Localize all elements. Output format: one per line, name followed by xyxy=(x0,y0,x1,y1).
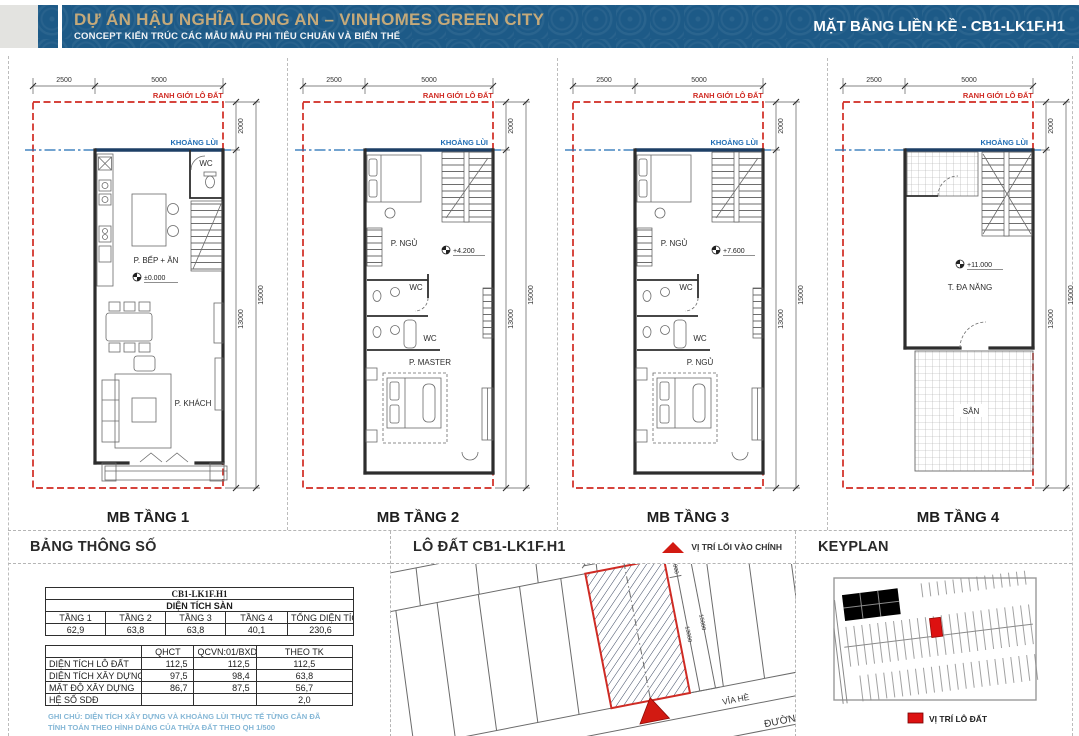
dim-body: 13000 xyxy=(1048,309,1055,329)
dim-body: 13000 xyxy=(238,309,245,329)
area-section-header: DIỆN TÍCH SÀN xyxy=(46,600,354,612)
area-value: 40,1 xyxy=(226,624,288,636)
floor-plan-tang-1: 2500 5000 RANH GIỚI LÔ ĐẤT KHOẢNG LÙI 20… xyxy=(10,58,280,528)
dim-front-yard: 2500 xyxy=(326,77,342,84)
plan-title: MB TẦNG 4 xyxy=(917,509,1000,526)
level-symbol xyxy=(712,246,720,254)
area-value: 62,9 xyxy=(46,624,106,636)
project-title: DỰ ÁN HẬU NGHĨA LONG AN – VINHOMES GREEN… xyxy=(74,11,544,30)
logo-block xyxy=(38,5,58,48)
entrance-legend: VỊ TRÍ LỐI VÀO CHÍNH xyxy=(662,542,796,553)
sheet-title: MẶT BẰNG LIỀN KỀ - CB1-LK1F.H1 xyxy=(813,18,1079,35)
dim-width: 5000 xyxy=(421,77,437,84)
boundary-label: RANH GIỚI LÔ ĐẤT xyxy=(153,90,224,100)
value-qcvn: 87,5 xyxy=(194,682,256,694)
living-set xyxy=(102,303,223,448)
col-header: TỔNG DIỆN TÍCH SÀN xyxy=(288,612,354,624)
level-value: +11.000 xyxy=(967,262,992,269)
row-label: MẬT ĐỘ XÂY DỰNG xyxy=(46,682,142,694)
area-value: 230,6 xyxy=(288,624,354,636)
area-value: 63,8 xyxy=(106,624,166,636)
bed2 xyxy=(653,373,717,443)
boundary-label: RANH GIỚI LÔ ĐẤT xyxy=(423,90,494,100)
right-dimension-lines xyxy=(1035,99,1070,491)
subject-lot xyxy=(585,564,690,708)
stairs-rail xyxy=(1004,152,1009,236)
level-symbol xyxy=(442,246,450,254)
right-dimension-lines xyxy=(765,99,800,491)
room-label-kitchen: P. BẾP + ĂN xyxy=(134,255,179,265)
wc-walls xyxy=(190,150,223,198)
drawing-sheet: DỰ ÁN HẬU NGHĨA LONG AN – VINHOMES GREEN… xyxy=(0,0,1079,736)
dim-front-yard: 2500 xyxy=(596,77,612,84)
col-header: TẦNG 3 xyxy=(166,612,226,624)
project-subtitle: CONCEPT KIẾN TRÚC CÁC MẪU MẪU PHI TIÊU C… xyxy=(74,32,544,42)
kitchen-island xyxy=(132,194,179,246)
lot-panel: LÔ ĐẤT CB1-LK1F.H1 VỊ TRÍ LỐI VÀO CHÍNH xyxy=(390,531,796,736)
value-qhct: 112,5 xyxy=(142,658,194,670)
stair-landing xyxy=(907,152,978,196)
room-label-wc2: WC xyxy=(423,334,437,343)
plan-title: MB TẦNG 1 xyxy=(107,509,190,526)
spec-table: CB1-LK1F.H1 DIỆN TÍCH SÀN TẦNG 1 TẦNG 2 … xyxy=(45,587,353,706)
lot-panel-title-row: LÔ ĐẤT CB1-LK1F.H1 VỊ TRÍ LỐI VÀO CHÍNH xyxy=(391,531,796,564)
header-bar: DỰ ÁN HẬU NGHĨA LONG AN – VINHOMES GREEN… xyxy=(38,5,1079,48)
empty-cell xyxy=(46,646,142,658)
room-label-bedroom: P. NGỦ xyxy=(391,239,418,248)
col-header: TẦNG 1 xyxy=(46,612,106,624)
header-text: DỰ ÁN HẬU NGHĨA LONG AN – VINHOMES GREEN… xyxy=(62,11,544,42)
dim-setback: 2000 xyxy=(1048,118,1055,134)
closet xyxy=(367,228,382,266)
col-header: TẦNG 2 xyxy=(106,612,166,624)
spec-panel-title: BẢNG THÔNG SỐ xyxy=(8,539,157,555)
level-value: +4.200 xyxy=(453,248,475,255)
dim-total: 15000 xyxy=(798,285,805,305)
room-label-bedroom: P. NGỦ xyxy=(661,239,688,248)
col-header: THEO TK xyxy=(256,646,352,658)
bedroom-bed xyxy=(367,155,421,218)
room-label-bedroom2: P. NGỦ xyxy=(687,358,714,367)
dim-setback: 2000 xyxy=(778,118,785,134)
keyplan-legend-label: VỊ TRÍ LÔ ĐẤT xyxy=(929,713,988,724)
col-header: TẦNG 4 xyxy=(226,612,288,624)
floor-area-table: CB1-LK1F.H1 DIỆN TÍCH SÀN TẦNG 1 TẦNG 2 … xyxy=(45,587,354,636)
model-code: CB1-LK1F.H1 xyxy=(46,588,354,600)
area-value: 63,8 xyxy=(166,624,226,636)
boundary-label: RANH GIỚI LÔ ĐẤT xyxy=(693,90,764,100)
dim-total: 15000 xyxy=(258,285,265,305)
room-label-living: P. KHÁCH xyxy=(175,399,212,408)
floor-plan-tang-4: 2500 5000 RANH GIỚI LÔ ĐẤT KHOẢNG LÙI 20… xyxy=(820,58,1079,528)
spec-panel-title-row: BẢNG THÔNG SỐ xyxy=(8,531,390,564)
level-symbol xyxy=(956,260,964,268)
dim-body: 13000 xyxy=(508,309,515,329)
dim-front-yard: 2500 xyxy=(866,77,882,84)
value-tk: 112,5 xyxy=(256,658,352,670)
keyplan-map: VỊ TRÍ LÔ ĐẤT xyxy=(796,564,1079,736)
stairs-rail xyxy=(464,152,469,222)
plan-title: MB TẦNG 2 xyxy=(377,509,460,526)
boundary-label: RANH GIỚI LÔ ĐẤT xyxy=(963,90,1034,100)
room-label-terrace: SÂN xyxy=(963,407,980,416)
master-bed xyxy=(383,373,447,443)
dim-front-yard: 2500 xyxy=(56,77,72,84)
col-header: QCVN:01/BXD xyxy=(194,646,256,658)
site-plan: 2500 5000 2000 13000 15000 VỈA HÈ ĐƯỜNG xyxy=(391,564,796,736)
wc-fixtures xyxy=(643,288,698,349)
room-label-wc1: WC xyxy=(409,283,423,292)
dim-total: 15000 xyxy=(1068,285,1075,305)
sidewalk-label: VỈA HÈ xyxy=(721,691,750,707)
level-value: ±0.000 xyxy=(144,275,165,282)
road-label: ĐƯỜNG xyxy=(763,710,796,730)
room-label-wc: WC xyxy=(199,159,213,168)
setback-label: KHOẢNG LÙI xyxy=(981,138,1029,147)
site-dim-total: 15000 xyxy=(697,614,706,631)
dim-width: 5000 xyxy=(691,77,707,84)
room-label-multi: T. ĐA NĂNG xyxy=(948,283,992,292)
lot-boundary xyxy=(33,102,223,488)
value-tk: 56,7 xyxy=(256,682,352,694)
col-header: QHCT xyxy=(142,646,194,658)
note-line-1: GHI CHÚ: DIỆN TÍCH XÂY DỰNG VÀ KHOẢNG LÙ… xyxy=(48,711,378,722)
stairs-rail xyxy=(734,152,739,222)
note-text: GHI CHÚ: DIỆN TÍCH XÂY DỰNG VÀ KHOẢNG LÙ… xyxy=(48,711,378,733)
entrance-triangle-icon xyxy=(662,542,684,553)
setback-label: KHOẢNG LÙI xyxy=(171,138,219,147)
level-symbol xyxy=(133,273,141,281)
floor-plan-tang-2: 2500 5000 RANH GIỚI LÔ ĐẤT KHOẢNG LÙI 20… xyxy=(280,58,550,528)
value-qcvn: 112,5 xyxy=(194,658,256,670)
bottom-section: BẢNG THÔNG SỐ CB1-LK1F.H1 DIỆN TÍCH SÀN … xyxy=(8,530,1072,736)
keyplan-panel: KEYPLAN xyxy=(795,531,1072,736)
terrace-door-arc xyxy=(960,322,986,348)
value-tk: 63,8 xyxy=(256,670,352,682)
row-label: DIỆN TÍCH LÔ ĐẤT xyxy=(46,658,142,670)
row-label: HỆ SỐ SDĐ xyxy=(46,694,142,706)
floor-plan-tang-3: 2500 5000 RANH GIỚI LÔ ĐẤT KHOẢNG LÙI 20… xyxy=(550,58,820,528)
wardrobe xyxy=(636,288,763,460)
value-qhct: 86,7 xyxy=(142,682,194,694)
setback-label: KHOẢNG LÙI xyxy=(441,138,489,147)
dim-width: 5000 xyxy=(961,77,977,84)
right-dimension-lines xyxy=(225,99,260,491)
wardrobe xyxy=(366,288,493,460)
room-label-wc2: WC xyxy=(693,334,707,343)
value-qhct: 97,5 xyxy=(142,670,194,682)
lot-panel-title: LÔ ĐẤT CB1-LK1F.H1 xyxy=(391,539,566,555)
site-dim-setback: 2000 xyxy=(671,564,679,574)
note-line-2: TÍNH TOÁN THEO HÌNH DÁNG CỦA THỬA ĐẤT TH… xyxy=(48,722,378,733)
plan-title: MB TẦNG 3 xyxy=(647,509,730,526)
entry-porch xyxy=(102,453,227,481)
spec-panel: BẢNG THÔNG SỐ CB1-LK1F.H1 DIỆN TÍCH SÀN … xyxy=(8,531,390,736)
dim-setback: 2000 xyxy=(238,118,245,134)
bedroom-bed xyxy=(637,155,691,218)
right-dimension-lines xyxy=(495,99,530,491)
entrance-legend-label: VỊ TRÍ LỐI VÀO CHÍNH xyxy=(691,542,782,552)
room-label-master: P. MASTER xyxy=(409,358,451,367)
wc-fixtures xyxy=(373,288,428,349)
kitchen-counter xyxy=(97,154,113,286)
site-dim-body: 13000 xyxy=(683,626,692,643)
keyplan-title: KEYPLAN xyxy=(796,539,889,555)
dim-width: 5000 xyxy=(151,77,167,84)
row-label: DIỆN TÍCH XÂY DỰNG xyxy=(46,670,142,682)
keyplan-title-row: KEYPLAN xyxy=(796,531,1072,564)
level-value: +7.600 xyxy=(723,248,745,255)
dining-set xyxy=(106,302,152,352)
setback-label: KHOẢNG LÙI xyxy=(711,138,759,147)
exterior-walls xyxy=(95,150,223,463)
value-tk: 2,0 xyxy=(256,694,352,706)
closet xyxy=(637,228,652,266)
value-qcvn: 98,4 xyxy=(194,670,256,682)
keyplan-subject-lot xyxy=(929,617,942,637)
sheet-corner-strip xyxy=(0,5,38,48)
room-label-wc1: WC xyxy=(679,283,693,292)
value-qcvn xyxy=(194,694,256,706)
dim-body: 13000 xyxy=(778,309,785,329)
dim-total: 15000 xyxy=(528,285,535,305)
value-qhct xyxy=(142,694,194,706)
dim-setback: 2000 xyxy=(508,118,515,134)
keyplan-legend-swatch xyxy=(908,713,923,723)
criteria-table: QHCT QCVN:01/BXD THEO TK DIỆN TÍCH LÔ ĐẤ… xyxy=(45,645,353,706)
